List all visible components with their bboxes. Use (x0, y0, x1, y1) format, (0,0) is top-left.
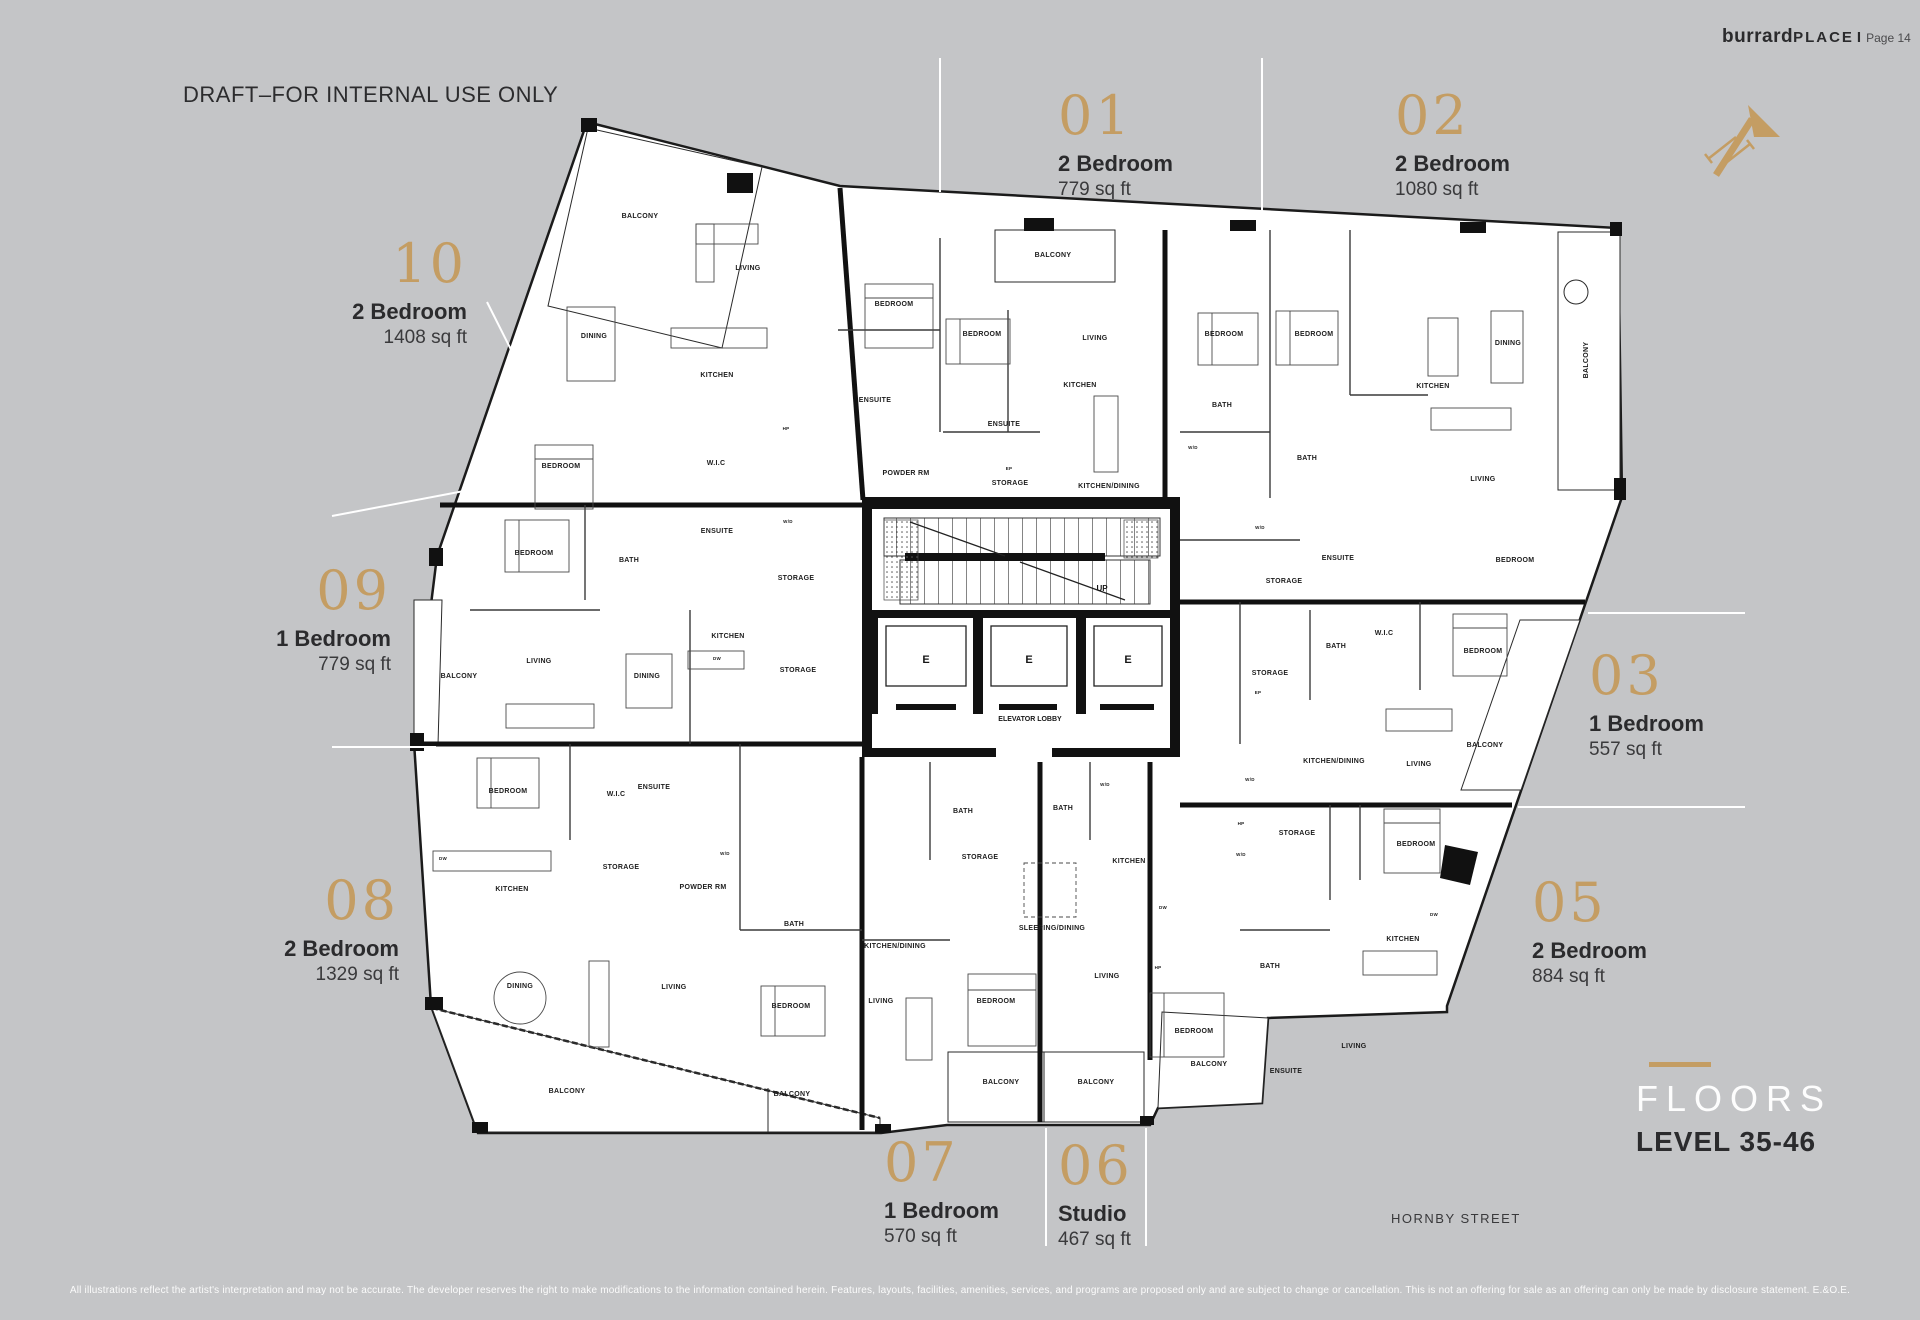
room-label: BEDROOM (772, 1003, 811, 1010)
floors-level: LEVEL 35-46 (1636, 1126, 1832, 1158)
room-label: W.I.C (707, 460, 726, 467)
room-label: KITCHEN (495, 886, 528, 893)
room-label: ENSUITE (638, 784, 670, 791)
room-label: BATH (784, 921, 804, 928)
gold-rule (1649, 1062, 1711, 1067)
room-label: BEDROOM (1175, 1028, 1214, 1035)
room-label: W/D (783, 519, 793, 524)
room-label: ENSUITE (859, 397, 891, 404)
unit-type: 2 Bedroom (352, 301, 467, 323)
unit-callout-07: 07 1 Bedroom 570 sq ft (884, 1137, 999, 1247)
room-label: DW (1159, 905, 1168, 910)
unit-type: 1 Bedroom (276, 628, 391, 650)
room-label: BALCONY (1583, 342, 1590, 379)
room-label: ENSUITE (701, 528, 733, 535)
room-label: W/D (1245, 777, 1255, 782)
room-label: BALCONY (549, 1088, 586, 1095)
unit-area: 557 sq ft (1589, 740, 1704, 760)
floors-block: FLOORS LEVEL 35-46 (1636, 1062, 1832, 1158)
room-label: KITCHEN/DINING (1078, 483, 1140, 490)
room-label: EP (1006, 466, 1013, 471)
room-label: BALCONY (622, 213, 659, 220)
room-label: BATH (1053, 805, 1073, 812)
unit-number: 03 (1589, 650, 1704, 702)
room-label: BALCONY (1035, 252, 1072, 259)
room-label: STORAGE (778, 575, 815, 582)
room-label: SLEEPING/DINING (1019, 925, 1086, 932)
room-label: STORAGE (1266, 578, 1303, 585)
room-label: BEDROOM (515, 550, 554, 557)
unit-number: 01 (1058, 90, 1173, 142)
room-label: BALCONY (1467, 742, 1504, 749)
draft-notice: DRAFT–FOR INTERNAL USE ONLY (183, 82, 558, 108)
unit-callout-09: 09 1 Bedroom 779 sq ft (276, 565, 391, 675)
room-label: BEDROOM (1464, 648, 1503, 655)
room-label: BATH (953, 808, 973, 815)
room-label: BATH (619, 557, 639, 564)
unit-type: 2 Bedroom (1058, 153, 1173, 175)
room-label: STORAGE (1252, 670, 1289, 677)
room-label: DW (439, 856, 448, 861)
unit-area: 467 sq ft (1058, 1230, 1133, 1250)
room-label: HP (1155, 965, 1162, 970)
room-label: DINING (634, 673, 661, 680)
room-label: STORAGE (780, 667, 817, 674)
room-label: DINING (1495, 340, 1522, 347)
unit-callout-06: 06 Studio 467 sq ft (1058, 1140, 1133, 1250)
unit-area: 1408 sq ft (352, 328, 467, 348)
street-label: HORNBY STREET (1391, 1211, 1521, 1226)
unit-callout-02: 02 2 Bedroom 1080 sq ft (1395, 90, 1510, 200)
room-label: ENSUITE (1270, 1068, 1302, 1075)
unit-area: 779 sq ft (276, 655, 391, 675)
room-label: BEDROOM (977, 998, 1016, 1005)
room-label: POWDER RM (882, 470, 929, 477)
unit-number: 10 (352, 238, 467, 290)
room-label: W.I.C (607, 791, 626, 798)
room-label: LIVING (1470, 476, 1495, 483)
elevator-letter: E (922, 654, 929, 666)
room-label: LIVING (1094, 973, 1119, 980)
room-label: DW (1430, 912, 1439, 917)
room-label: STORAGE (962, 854, 999, 861)
unit-number: 07 (884, 1137, 999, 1189)
brand-name-lower: burrard (1722, 26, 1793, 47)
room-label: W/D (1100, 782, 1110, 787)
room-label: LIVING (1406, 761, 1431, 768)
unit-area: 1080 sq ft (1395, 180, 1510, 200)
unit-type: 1 Bedroom (884, 1200, 999, 1222)
room-label: LIVING (526, 658, 551, 665)
room-label: BALCONY (983, 1079, 1020, 1086)
unit-area: 570 sq ft (884, 1227, 999, 1247)
brand-separator: I (1857, 29, 1861, 46)
elevator-letter: E (1124, 654, 1131, 666)
room-label: W/D (1236, 852, 1246, 857)
room-label: ENSUITE (1322, 555, 1354, 562)
room-label: W/D (1188, 445, 1198, 450)
room-label: BEDROOM (1205, 331, 1244, 338)
unit-number: 06 (1058, 1140, 1133, 1192)
room-label: BATH (1212, 402, 1232, 409)
unit-callout-10: 10 2 Bedroom 1408 sq ft (352, 238, 467, 348)
unit-area: 779 sq ft (1058, 180, 1173, 200)
room-label: BEDROOM (1496, 557, 1535, 564)
unit-number: 05 (1532, 877, 1647, 929)
room-label: KITCHEN/DINING (1303, 758, 1365, 765)
room-label: LIVING (661, 984, 686, 991)
room-label: DINING (581, 333, 608, 340)
unit-type: 2 Bedroom (284, 938, 399, 960)
room-label: KITCHEN (711, 633, 744, 640)
room-label: BALCONY (1191, 1061, 1228, 1068)
room-label: W/D (720, 851, 730, 856)
room-label: BEDROOM (489, 788, 528, 795)
room-label: BEDROOM (875, 301, 914, 308)
room-label: LIVING (1341, 1043, 1366, 1050)
unit-callout-08: 08 2 Bedroom 1329 sq ft (284, 875, 399, 985)
floors-title: FLOORS (1636, 1081, 1832, 1117)
room-label: DW (713, 656, 722, 661)
room-label: BATH (1326, 643, 1346, 650)
room-label: LIVING (1082, 335, 1107, 342)
room-label: BEDROOM (1397, 841, 1436, 848)
stairs-up-label: UP (1096, 584, 1108, 593)
unit-type: 2 Bedroom (1532, 940, 1647, 962)
room-label: BALCONY (774, 1091, 811, 1098)
page-number-label: Page 14 (1866, 31, 1911, 45)
room-label: DINING (507, 983, 534, 990)
north-arrow-icon (1700, 103, 1780, 183)
unit-callout-05: 05 2 Bedroom 884 sq ft (1532, 877, 1647, 987)
room-label: EP (1255, 690, 1262, 695)
unit-callout-01: 01 2 Bedroom 779 sq ft (1058, 90, 1173, 200)
room-label: KITCHEN (1112, 858, 1145, 865)
room-label: BEDROOM (1295, 331, 1334, 338)
unit-type: Studio (1058, 1203, 1133, 1225)
room-label: KITCHEN (1386, 936, 1419, 943)
unit-number: 09 (276, 565, 391, 617)
room-label: BALCONY (1078, 1079, 1115, 1086)
room-label: W/D (1255, 525, 1265, 530)
room-label: KITCHEN (1416, 383, 1449, 390)
room-label: POWDER RM (679, 884, 726, 891)
room-label: HP (783, 426, 790, 431)
elevator-letter: E (1025, 654, 1032, 666)
unit-area: 1329 sq ft (284, 965, 399, 985)
room-label: LIVING (735, 265, 760, 272)
room-label: STORAGE (1279, 830, 1316, 837)
room-label: STORAGE (992, 480, 1029, 487)
room-label: W.I.C (1375, 630, 1394, 637)
room-label: STORAGE (603, 864, 640, 871)
room-label: BALCONY (441, 673, 478, 680)
elevator-lobby-label: ELEVATOR LOBBY (998, 716, 1062, 723)
room-label: ENSUITE (988, 421, 1020, 428)
unit-type: 2 Bedroom (1395, 153, 1510, 175)
room-label: KITCHEN (700, 372, 733, 379)
unit-number: 08 (284, 875, 399, 927)
room-label: BATH (1260, 963, 1280, 970)
room-label: LIVING (868, 998, 893, 1005)
room-label: KITCHEN (1063, 382, 1096, 389)
room-label: BEDROOM (542, 463, 581, 470)
brand-name-upper: PLACE (1793, 29, 1854, 46)
unit-number: 02 (1395, 90, 1510, 142)
room-label: HP (1238, 821, 1245, 826)
room-label: BEDROOM (963, 331, 1002, 338)
disclaimer-text: All illustrations reflect the artist's i… (0, 1285, 1920, 1296)
unit-type: 1 Bedroom (1589, 713, 1704, 735)
brand-logo: burrardPLACEIPage 14 (1722, 26, 1911, 48)
room-label: KITCHEN/DINING (864, 943, 926, 950)
room-label: BATH (1297, 455, 1317, 462)
unit-area: 884 sq ft (1532, 967, 1647, 987)
unit-callout-03: 03 1 Bedroom 557 sq ft (1589, 650, 1704, 760)
